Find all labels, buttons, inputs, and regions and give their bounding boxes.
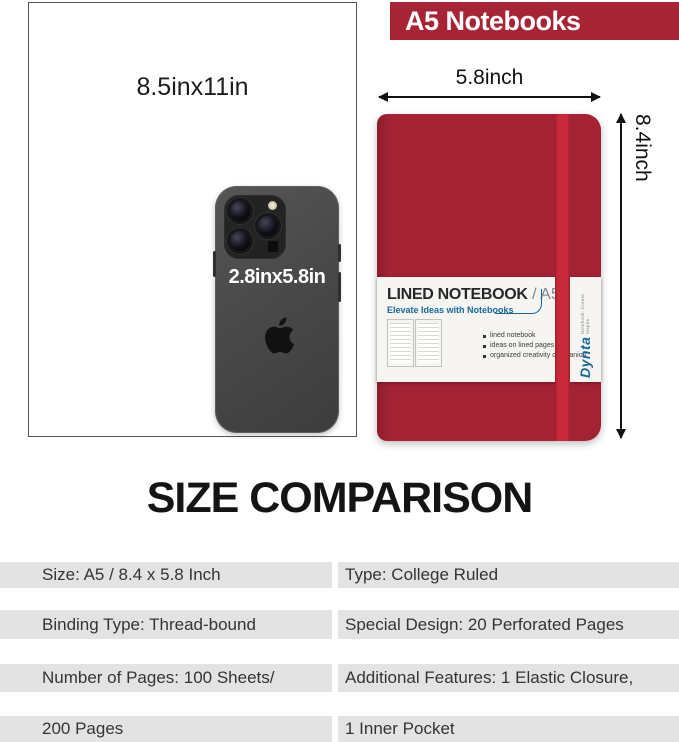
phone-side-button <box>213 251 216 277</box>
spec-cell-pages: Number of Pages: 100 Sheets/ <box>0 664 332 692</box>
width-arrow-icon <box>379 96 600 98</box>
notebook-height-label: 8.4inch <box>630 114 654 438</box>
spec-row: Size: A5 / 8.4 x 5.8 Inch Type: College … <box>0 562 679 588</box>
paper-dimension-label: 8.5inx11in <box>29 73 356 102</box>
banner-title: A5 Notebooks <box>390 2 679 40</box>
spec-cell-type: Type: College Ruled <box>338 562 679 588</box>
notebook: LINED NOTEBOOK / A5 Elevate Ideas with N… <box>377 114 601 441</box>
notebook-width-label: 5.8inch <box>379 66 600 90</box>
height-arrow-icon <box>620 114 622 438</box>
camera-flash-icon <box>268 201 277 210</box>
phone-side-button <box>338 272 341 302</box>
page-title: SIZE COMPARISON <box>0 474 679 523</box>
spec-cell-additional-features: Additional Features: 1 Elastic Closure, <box>338 664 679 692</box>
camera-lens-icon <box>227 198 253 224</box>
apple-logo-icon <box>254 309 300 366</box>
phone-side-button <box>338 244 341 262</box>
brand-logo: Dynta Notebook. Create. Inspire. <box>571 281 599 378</box>
page-left-icon <box>387 319 414 367</box>
page-right-icon <box>415 319 442 367</box>
notebook-label-subtitle: Elevate Ideas with Notebooks <box>387 305 514 315</box>
brand-name: Dynta <box>577 337 593 378</box>
phone: 2.8inx5.8in <box>215 186 339 433</box>
spec-cell-special-design: Special Design: 20 Perforated Pages <box>338 610 679 639</box>
product-infographic: A5 Notebooks 8.5inx11in 2.8inx5.8in LINE… <box>0 0 679 742</box>
brand-tagline: Notebook. Create. Inspire. <box>580 281 590 334</box>
spec-row: 200 Pages 1 Inner Pocket <box>0 716 679 742</box>
elastic-band <box>555 114 570 441</box>
spec-cell-features-cont: 1 Inner Pocket <box>338 716 679 742</box>
phone-dimension-label: 2.8inx5.8in <box>215 266 339 289</box>
spec-cell-binding: Binding Type: Thread-bound <box>0 610 332 639</box>
phone-camera-module <box>224 195 286 259</box>
camera-lens-icon <box>227 228 253 254</box>
spec-cell-size: Size: A5 / 8.4 x 5.8 Inch <box>0 562 332 588</box>
camera-lens-icon <box>255 213 281 239</box>
lined-pages-icon <box>387 319 445 367</box>
spec-row: Number of Pages: 100 Sheets/ Additional … <box>0 664 679 692</box>
camera-lidar-icon <box>268 241 278 252</box>
spec-row: Binding Type: Thread-bound Special Desig… <box>0 610 679 639</box>
spec-cell-pages-cont: 200 Pages <box>0 716 332 742</box>
